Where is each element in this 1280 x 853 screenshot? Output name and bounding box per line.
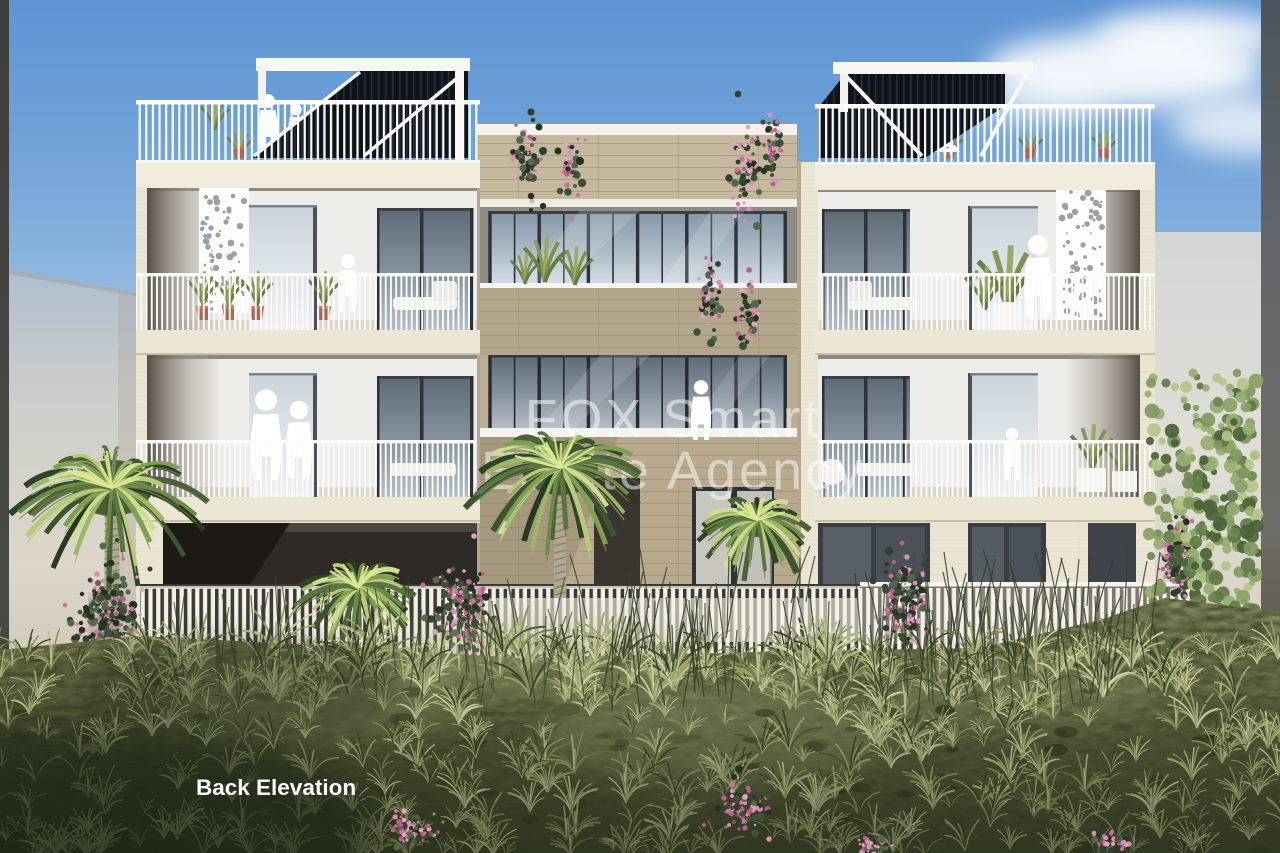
svg-text:Back Elevation: Back Elevation — [196, 775, 356, 800]
